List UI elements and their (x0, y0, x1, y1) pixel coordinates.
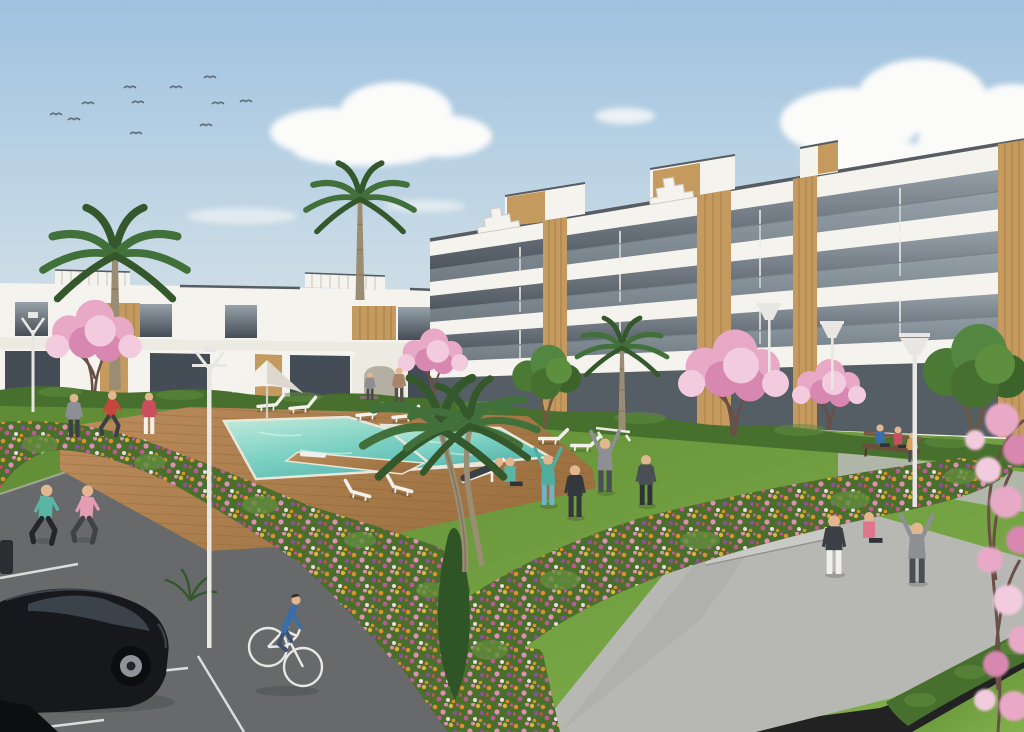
black-hatchback (0, 588, 169, 714)
rendering-figure: New-build residential complex: white mod… (0, 0, 1024, 732)
rendering-stage: New-build residential complex: white mod… (0, 0, 1024, 732)
cloud-small (595, 108, 655, 124)
rendering-canvas (0, 0, 1024, 732)
car-distant (0, 540, 13, 574)
